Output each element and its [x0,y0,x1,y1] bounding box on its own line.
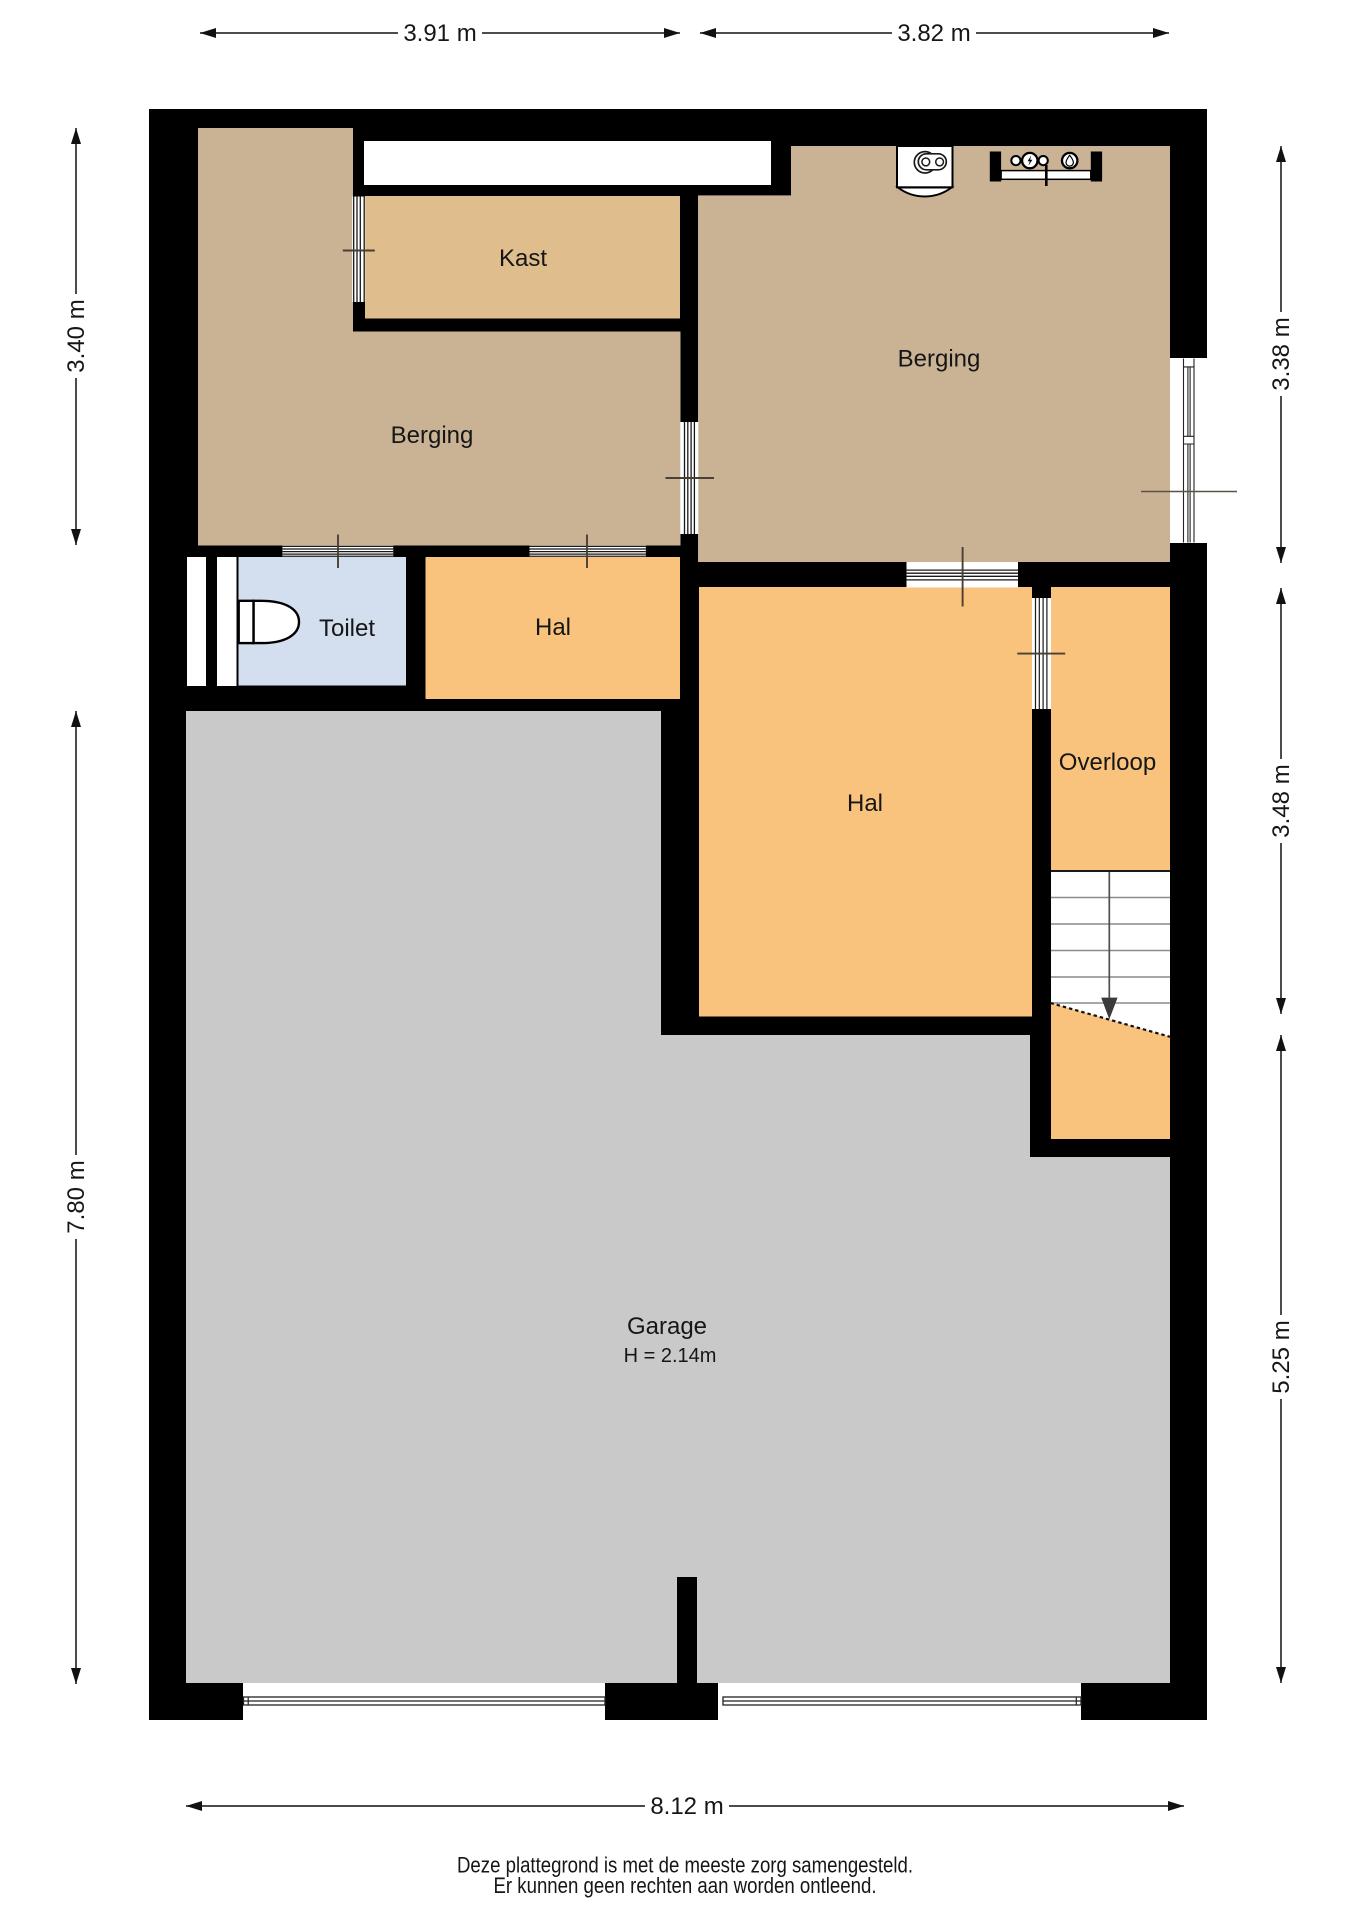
svg-text:3.82 m: 3.82 m [897,20,970,47]
svg-text:8.12 m: 8.12 m [650,1793,723,1820]
svg-text:Kast: Kast [499,245,547,272]
svg-text:Berging: Berging [898,346,981,373]
svg-text:3.38 m: 3.38 m [1268,317,1295,390]
svg-text:3.40 m: 3.40 m [63,299,90,372]
svg-text:7.80 m: 7.80 m [63,1160,90,1233]
svg-text:3.91 m: 3.91 m [403,20,476,47]
svg-text:Garage: Garage [627,1313,707,1340]
svg-text:Overloop: Overloop [1059,749,1156,776]
svg-text:Hal: Hal [847,790,883,817]
svg-text:H = 2.14m: H = 2.14m [624,1345,717,1367]
svg-text:Berging: Berging [391,422,474,449]
svg-text:Toilet: Toilet [319,615,375,642]
svg-text:5.25 m: 5.25 m [1268,1320,1295,1393]
svg-text:Hal: Hal [535,614,571,641]
svg-text:3.48 m: 3.48 m [1268,764,1295,837]
svg-text:Er kunnen geen rechten aan wor: Er kunnen geen rechten aan worden ontlee… [494,1873,877,1898]
